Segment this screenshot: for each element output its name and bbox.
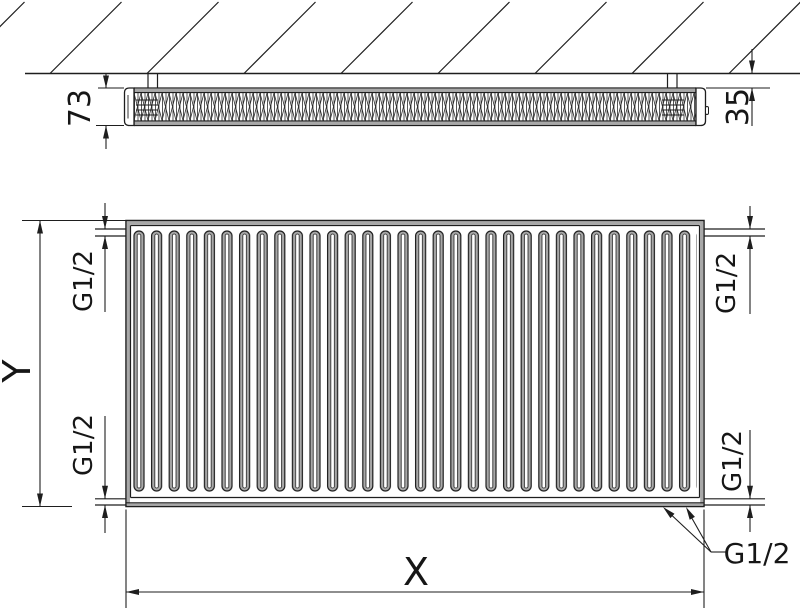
arrowhead bbox=[102, 236, 108, 249]
thread-label-top-left: G1/2 bbox=[71, 250, 97, 312]
thread-label-top-right: G1/2 bbox=[714, 252, 740, 314]
arrowhead bbox=[37, 221, 43, 234]
dimension-thread-top-left bbox=[102, 203, 108, 312]
arrowhead bbox=[126, 589, 139, 595]
dimension-depth-73 bbox=[96, 74, 124, 150]
mounting-bracket-right bbox=[668, 74, 678, 88]
connection-stub-top-right bbox=[704, 229, 766, 236]
back-panel-shade bbox=[134, 89, 696, 92]
dimension-thread-bottom-left bbox=[102, 416, 108, 533]
arrowhead bbox=[102, 216, 108, 229]
thread-label-bottom-connections: G1/2 bbox=[724, 540, 791, 568]
mounting-bracket-left bbox=[148, 74, 158, 88]
radiator-top-profile bbox=[125, 88, 709, 126]
top-view bbox=[0, 2, 800, 149]
width-dimension-label: X bbox=[403, 553, 429, 591]
wall-distance-dimension-label: 35 bbox=[724, 88, 754, 126]
top-edge-shade bbox=[127, 222, 703, 225]
arrowhead bbox=[749, 61, 755, 74]
convector-fins bbox=[134, 93, 696, 122]
height-dimension-label: Y bbox=[0, 359, 36, 382]
wall-hatching bbox=[0, 2, 800, 74]
end-cap-right bbox=[696, 88, 706, 126]
valve-stub bbox=[706, 107, 709, 115]
arrowhead bbox=[686, 507, 695, 520]
arrowhead bbox=[747, 216, 753, 229]
end-cap-left bbox=[125, 88, 135, 126]
radiator-technical-drawing: 73 35 G1/2 G1/2 G1/2 G1/2 G1/2 X Y bbox=[0, 0, 800, 611]
thread-label-bottom-right: G1/2 bbox=[720, 430, 746, 492]
arrowhead bbox=[747, 505, 753, 518]
arrowhead bbox=[747, 236, 753, 249]
right-edge-shade bbox=[700, 222, 703, 506]
depth-dimension-label: 73 bbox=[66, 89, 96, 127]
arrowhead bbox=[103, 76, 109, 89]
leader-bottom-connections bbox=[663, 507, 727, 552]
thread-label-bottom-left: G1/2 bbox=[71, 414, 97, 476]
left-edge-shade bbox=[127, 222, 130, 506]
arrowhead bbox=[103, 126, 109, 139]
dimension-thread-top-right bbox=[747, 206, 753, 314]
drawing-linework bbox=[0, 0, 800, 611]
connection-stub-top-left bbox=[95, 229, 127, 236]
front-view bbox=[22, 203, 765, 608]
arrowhead bbox=[102, 505, 108, 518]
fin-tubes bbox=[131, 230, 698, 492]
arrowhead bbox=[102, 486, 108, 499]
bottom-edge-shade bbox=[127, 503, 703, 505]
arrowhead bbox=[37, 494, 43, 507]
front-panel-shade bbox=[134, 122, 696, 125]
connection-stub-bottom-left bbox=[95, 499, 127, 505]
arrowhead bbox=[691, 589, 704, 595]
connection-stub-bottom-right bbox=[704, 499, 766, 505]
